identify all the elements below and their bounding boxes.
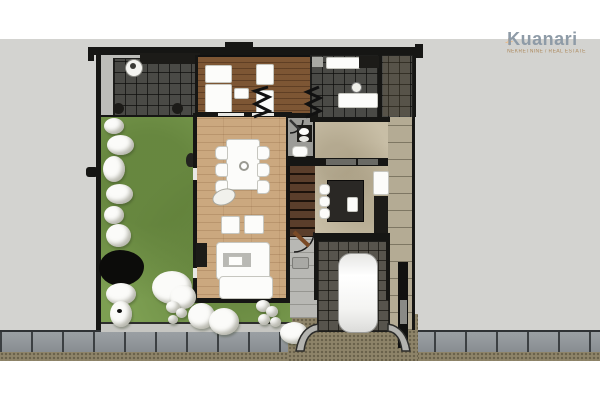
brand-name: Kuanari xyxy=(507,30,600,48)
zigzag-chair xyxy=(254,87,269,117)
front-door-leaf xyxy=(294,232,309,246)
bathroom-door-leaf xyxy=(290,120,300,130)
curb-left xyxy=(296,324,318,351)
brand-logo: Kuanari NEKRETNINE / REAL ESTATE xyxy=(505,22,600,64)
brand-tagline: NEKRETNINE / REAL ESTATE xyxy=(507,49,586,54)
zigzag-chair xyxy=(306,87,320,117)
floor-plan-render: Kuanari NEKRETNINE / REAL ESTATE xyxy=(0,0,600,400)
curb-right xyxy=(388,324,410,351)
